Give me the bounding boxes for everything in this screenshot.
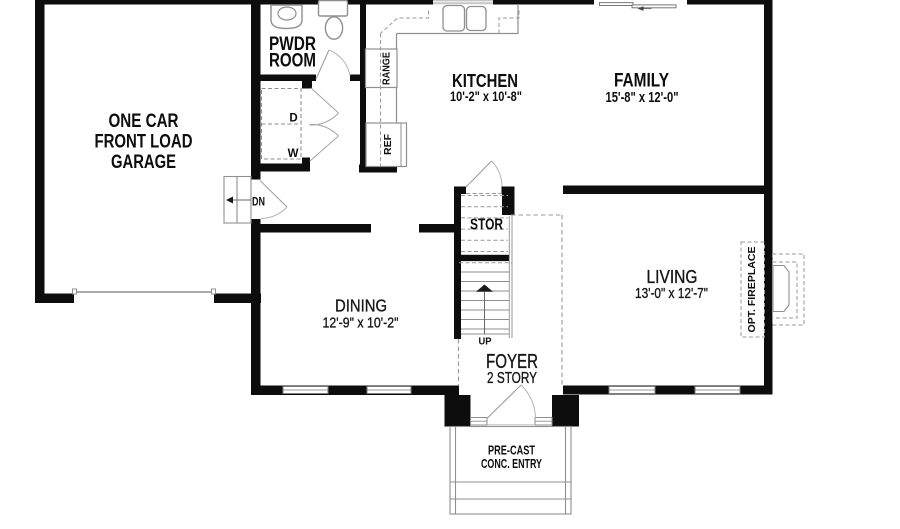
svg-text:GARAGE: GARAGE xyxy=(111,152,176,173)
svg-text:10'-2" x 10'-8": 10'-2" x 10'-8" xyxy=(450,88,522,104)
svg-text:PRE-CAST: PRE-CAST xyxy=(488,444,535,458)
svg-text:ONE CAR: ONE CAR xyxy=(109,111,179,132)
svg-text:FAMILY: FAMILY xyxy=(614,71,669,92)
svg-text:DINING: DINING xyxy=(335,296,387,316)
svg-text:D: D xyxy=(289,113,297,125)
svg-text:LIVING: LIVING xyxy=(647,267,698,287)
svg-text:CONC. ENTRY: CONC. ENTRY xyxy=(481,457,542,471)
svg-text:DN: DN xyxy=(252,195,265,209)
svg-text:FRONT LOAD: FRONT LOAD xyxy=(95,132,193,153)
svg-text:UP: UP xyxy=(479,336,492,348)
svg-text:ROOM: ROOM xyxy=(269,51,316,72)
svg-text:REF: REF xyxy=(383,134,394,155)
svg-text:W: W xyxy=(288,148,299,160)
svg-text:STOR: STOR xyxy=(470,217,503,234)
svg-text:15'-8" x 12'-0": 15'-8" x 12'-0" xyxy=(606,90,679,106)
svg-text:OPT. FIREPLACE: OPT. FIREPLACE xyxy=(747,246,758,333)
svg-text:RANGE: RANGE xyxy=(382,52,393,85)
svg-text:13'-0" x 12'-7": 13'-0" x 12'-7" xyxy=(635,286,708,302)
svg-text:2 STORY: 2 STORY xyxy=(487,370,537,387)
svg-text:12'-9" x 10'-2": 12'-9" x 10'-2" xyxy=(323,315,399,332)
